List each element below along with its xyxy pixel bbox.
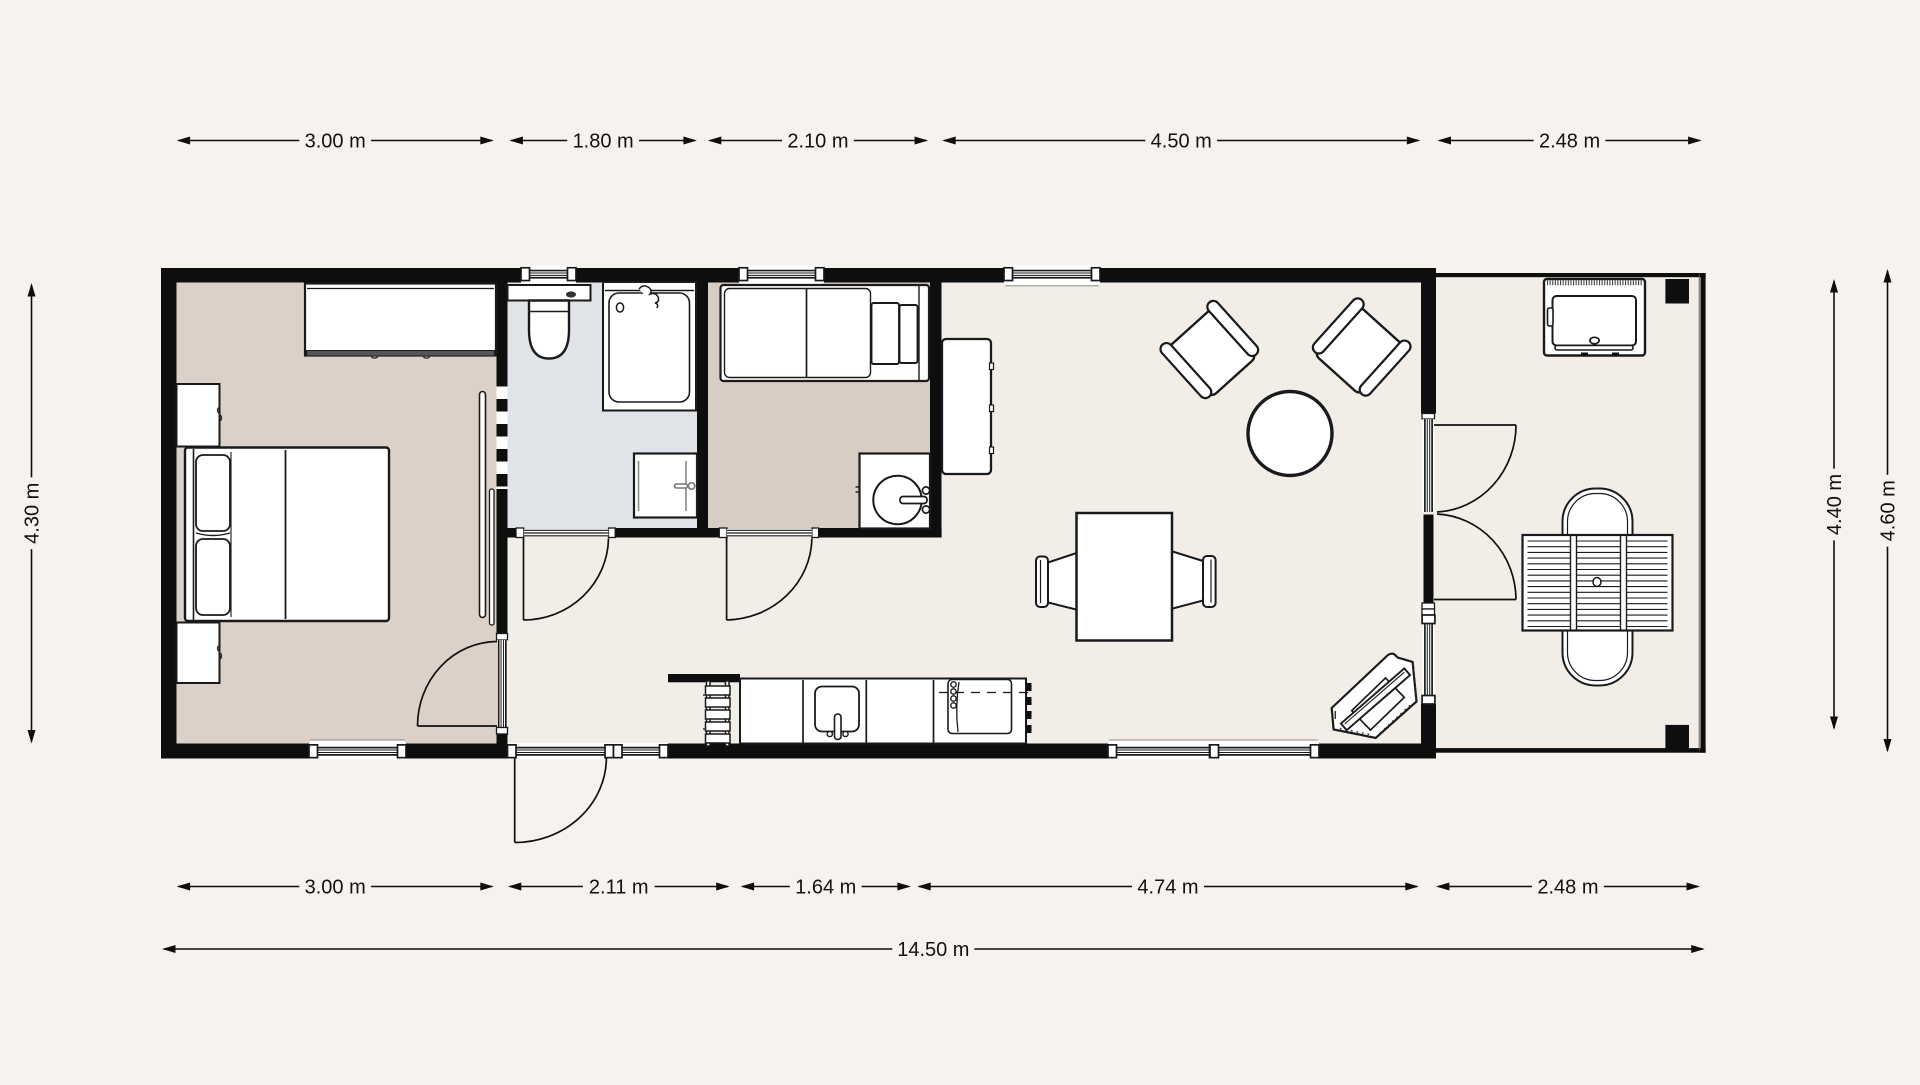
svg-text:2.48 m: 2.48 m [1537, 877, 1598, 899]
svg-text:2.48 m: 2.48 m [1539, 131, 1600, 153]
svg-text:2.10 m: 2.10 m [787, 131, 848, 153]
svg-text:2.11 m: 2.11 m [589, 877, 649, 899]
svg-text:3.00 m: 3.00 m [305, 131, 366, 153]
svg-text:4.74 m: 4.74 m [1137, 877, 1198, 899]
svg-text:14.50 m: 14.50 m [897, 939, 969, 961]
svg-text:3.00 m: 3.00 m [305, 877, 366, 899]
svg-text:4.30 m: 4.30 m [22, 483, 44, 544]
svg-text:1.64 m: 1.64 m [795, 877, 856, 899]
svg-text:4.60 m: 4.60 m [1878, 480, 1900, 541]
svg-text:1.80 m: 1.80 m [573, 131, 634, 153]
svg-text:4.50 m: 4.50 m [1151, 131, 1212, 153]
svg-text:4.40 m: 4.40 m [1824, 474, 1846, 535]
